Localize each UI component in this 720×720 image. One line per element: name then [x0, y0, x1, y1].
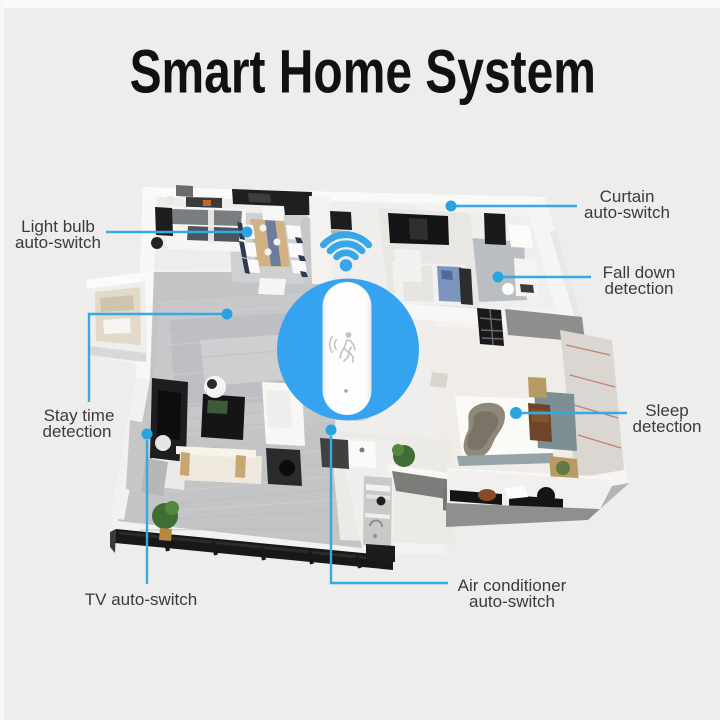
svg-text:Smart Home System: Smart Home System — [130, 37, 596, 106]
svg-text:auto-switch: auto-switch — [15, 233, 101, 252]
svg-text:auto-switch: auto-switch — [469, 592, 555, 611]
svg-text:detection: detection — [605, 279, 674, 298]
svg-text:TV auto-switch: TV auto-switch — [85, 590, 197, 609]
svg-text:detection: detection — [633, 417, 702, 436]
svg-text:detection: detection — [43, 422, 112, 441]
svg-text:auto-switch: auto-switch — [584, 203, 670, 222]
